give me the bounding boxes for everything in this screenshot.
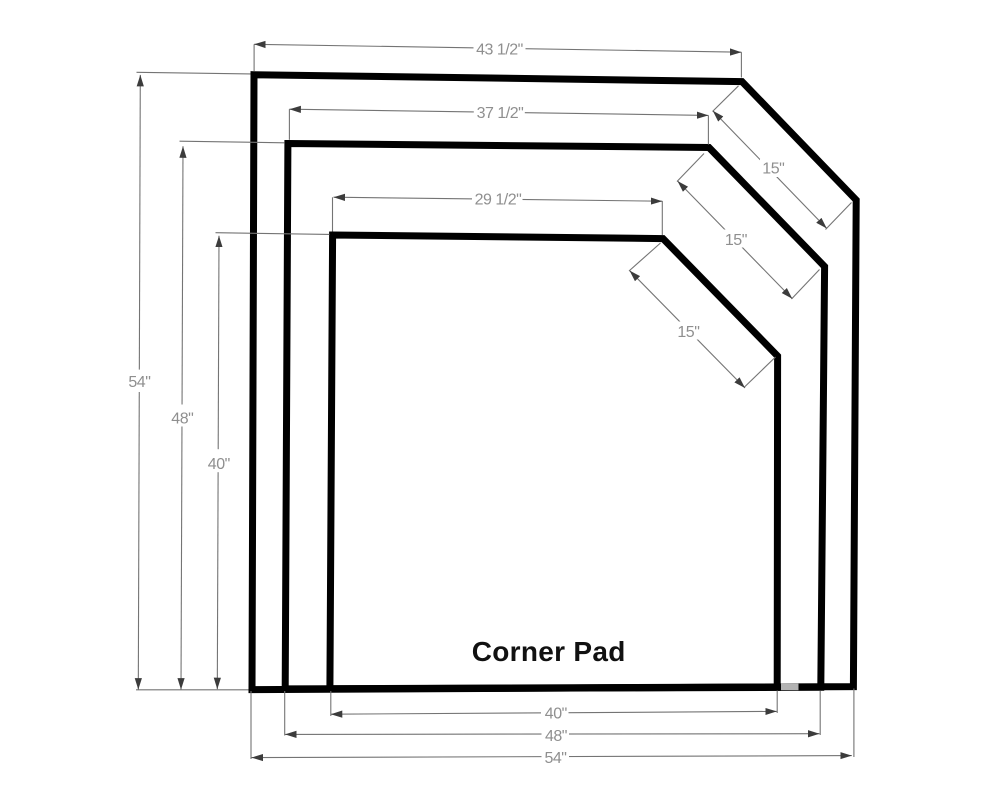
svg-text:15": 15" xyxy=(677,324,699,341)
svg-text:Corner Pad: Corner Pad xyxy=(472,636,626,667)
svg-text:15": 15" xyxy=(762,160,784,177)
svg-text:54": 54" xyxy=(128,374,150,391)
svg-text:54": 54" xyxy=(545,750,567,767)
svg-text:43 1/2": 43 1/2" xyxy=(476,42,523,59)
svg-text:29 1/2": 29 1/2" xyxy=(475,191,522,208)
svg-text:40": 40" xyxy=(545,706,567,723)
svg-text:37 1/2": 37 1/2" xyxy=(477,105,524,122)
svg-text:48": 48" xyxy=(171,410,193,427)
svg-text:15": 15" xyxy=(725,232,747,249)
svg-text:40": 40" xyxy=(208,456,230,473)
svg-text:48": 48" xyxy=(545,728,567,745)
